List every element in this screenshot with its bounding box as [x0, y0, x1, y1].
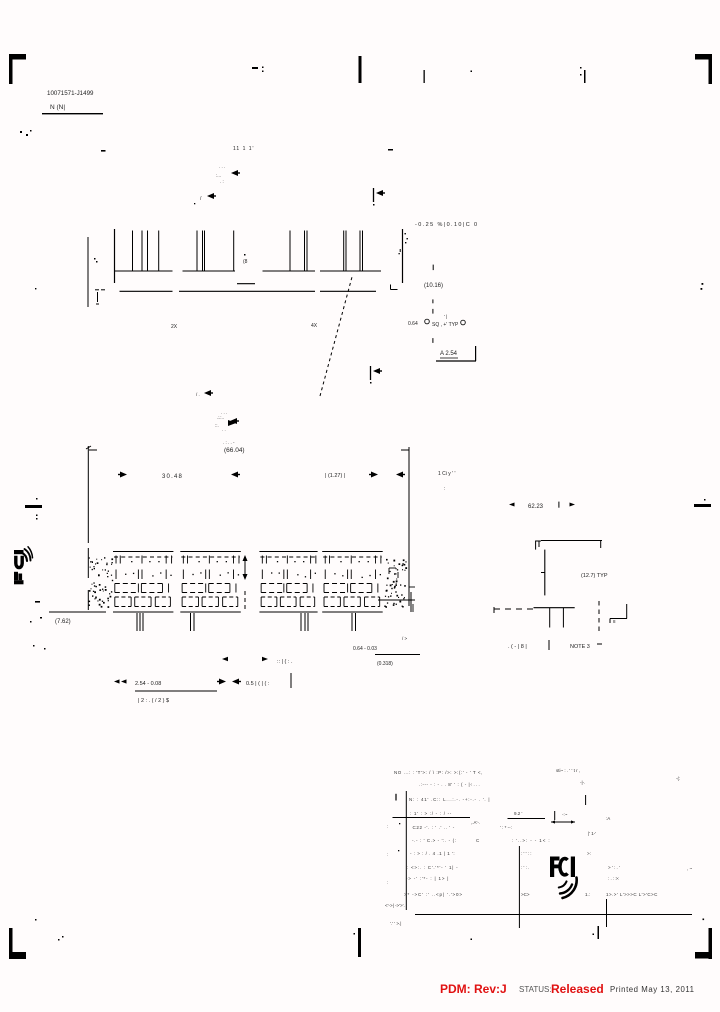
svg-text::: : [444, 486, 445, 492]
svg-text:11 1 1': 11 1 1' [233, 146, 255, 152]
svg-text:N (N|: N (N| [50, 104, 65, 111]
svg-text:. . .: . . . [221, 410, 227, 415]
svg-text:1>.>' L'>>>C L'>'C>C: 1>.>' L'>>>C L'>'C>C [606, 892, 658, 897]
svg-text:.:: .: [217, 415, 220, 420]
svg-text:-:~: -:~ [562, 812, 568, 817]
svg-text:(66.04): (66.04) [224, 447, 245, 454]
svg-text:10071571-J1499: 10071571-J1499 [47, 90, 94, 97]
svg-text:0.64: 0.64 [408, 321, 418, 327]
svg-text:STATUS:: STATUS: [519, 985, 552, 994]
svg-text::...: :... [216, 173, 221, 178]
svg-text:2X: 2X [171, 324, 178, 330]
svg-text::: : [387, 852, 388, 857]
svg-text:2.54 - 0.08: 2.54 - 0.08 [135, 681, 161, 687]
svg-text:NO ...: : 'T'>: / \: NO ...: : 'T'>: / \ :P: />: >:(:' - ' T … [394, 770, 483, 775]
svg-text:>:: >: [587, 851, 591, 856]
svg-text:.:..: .:.. [219, 415, 224, 420]
svg-text:0.64 - 0.03: 0.64 - 0.03 [353, 646, 377, 652]
svg-text:Released: Released [551, 982, 604, 996]
svg-text:, ~: , ~ [687, 866, 693, 871]
svg-text:> ' : . ': > ' : . ' [608, 865, 620, 870]
svg-text:9.2 ': 9.2 ' [514, 811, 523, 816]
svg-text:1 Ci y ' ': 1 Ci y ' ' [438, 471, 456, 477]
svg-text:(8: (8 [243, 259, 248, 265]
svg-text:4X: 4X [311, 323, 318, 329]
svg-text:SQ , +' TYP: SQ , +' TYP [432, 322, 459, 328]
svg-text:62.23: 62.23 [528, 504, 544, 510]
svg-text:. . .: . . . [219, 164, 225, 169]
svg-text:' : * --:: ' : * --: [500, 825, 512, 830]
svg-text:: . : >:: : . : >: [608, 876, 619, 881]
svg-text:C22 -'. : ' .' .. ' -: C22 -'. : ' .' .. ' - [413, 825, 455, 830]
svg-text:A 2.54: A 2.54 [440, 351, 458, 357]
svg-text:<'->| ->'>'.: <'->| ->'>'. [385, 903, 405, 908]
svg-text:::.: ::. [215, 423, 219, 428]
svg-text:|' 1-': |' 1-' [588, 831, 596, 836]
svg-text:: ' ' : :: : ' ' : : [521, 851, 531, 856]
svg-text:-|-.: -|-. [580, 780, 585, 785]
svg-text:,.A'-.: ,.A'-. [471, 820, 480, 825]
svg-text:30.48: 30.48 [162, 474, 183, 480]
svg-text:(7.62): (7.62) [55, 619, 71, 625]
svg-text:(12.7) TYP: (12.7) TYP [581, 573, 608, 579]
svg-text:PDM: Rev:J: PDM: Rev:J [440, 982, 507, 996]
svg-text::A: :A [606, 816, 610, 821]
svg-text::: : [387, 880, 388, 885]
svg-text::: | ( : .: :: | ( : . [277, 659, 293, 665]
svg-text:N: : 41' .C:: L...:.-. -+:-: N: : 41' .C:: L...:.-. -+:-.- . '. | [409, 797, 490, 802]
svg-text:(0.318): (0.318) [377, 661, 393, 667]
svg-text:. : . . -: . : . . - [223, 440, 235, 445]
svg-text::: : [387, 824, 388, 829]
svg-text:sti~ : . ' ' t r ,: sti~ : . ' ' t r , [556, 768, 580, 773]
svg-text:: <>:. : C'.'*'- ' 1| -: : <>:. : C'.'*'- ' 1| - [407, 865, 458, 870]
svg-text:'.' ' >.|: '.' ' >.| [390, 921, 401, 926]
svg-text:-0.25 %|0.10|C 0: -0.25 %|0.10|C 0 [415, 222, 478, 228]
svg-text:- : > : / . 4 .1 | 1 ':: - : > : / . 4 .1 | 1 ': [410, 851, 455, 856]
svg-text:: 1' : > :/ - : / --: : 1' : > :/ - : / -- [410, 811, 452, 816]
svg-text:: . . .: : . . . [471, 782, 480, 787]
svg-text:. ( - | 8 |: . ( - | 8 | [508, 644, 527, 650]
svg-text:. :: . : [220, 179, 224, 184]
svg-text:-.- : ' C.> - ':. - (:: -.- : ' C.> - ':. - (: [412, 838, 457, 843]
svg-text:.:--- - : - . . 8' ': .:--- - : - . . 8' ' : ( - |- [419, 782, 472, 787]
svg-text:' |: ' | [444, 314, 447, 319]
svg-text:>* ->C' :' ..<p| '.'>0>: >* ->C' :' ..<p| '.'>0> [404, 892, 463, 897]
svg-text:>C>: >C> [521, 892, 530, 897]
svg-text:-> -' :'*- : | 1> |: -> -' :'*- : | 1> | [406, 876, 449, 881]
svg-text:: ' : .: : ' : . [521, 865, 529, 870]
svg-text:| (1.27) |: | (1.27) | [325, 473, 345, 479]
svg-text:/ .: / . [196, 392, 200, 397]
svg-text:. .: . . [222, 427, 226, 432]
svg-text:1.:: 1.: [585, 892, 590, 897]
svg-text:NOTE 3: NOTE 3 [570, 644, 590, 650]
svg-text:(10.16): (10.16) [424, 283, 443, 289]
svg-text:| 2 : . ( / 2 ) $: | 2 : . ( / 2 ) $ [138, 698, 169, 704]
svg-text:: '..>: - - 1< :: : '..>: - - 1< : [512, 838, 551, 843]
svg-text:/ >: / > [402, 636, 408, 641]
svg-text:0.5 | ( | ( :: 0.5 | ( | ( : [246, 681, 270, 687]
svg-text:Printed May 13, 2011: Printed May 13, 2011 [610, 985, 695, 994]
svg-text:-(:: -(: [676, 776, 680, 781]
